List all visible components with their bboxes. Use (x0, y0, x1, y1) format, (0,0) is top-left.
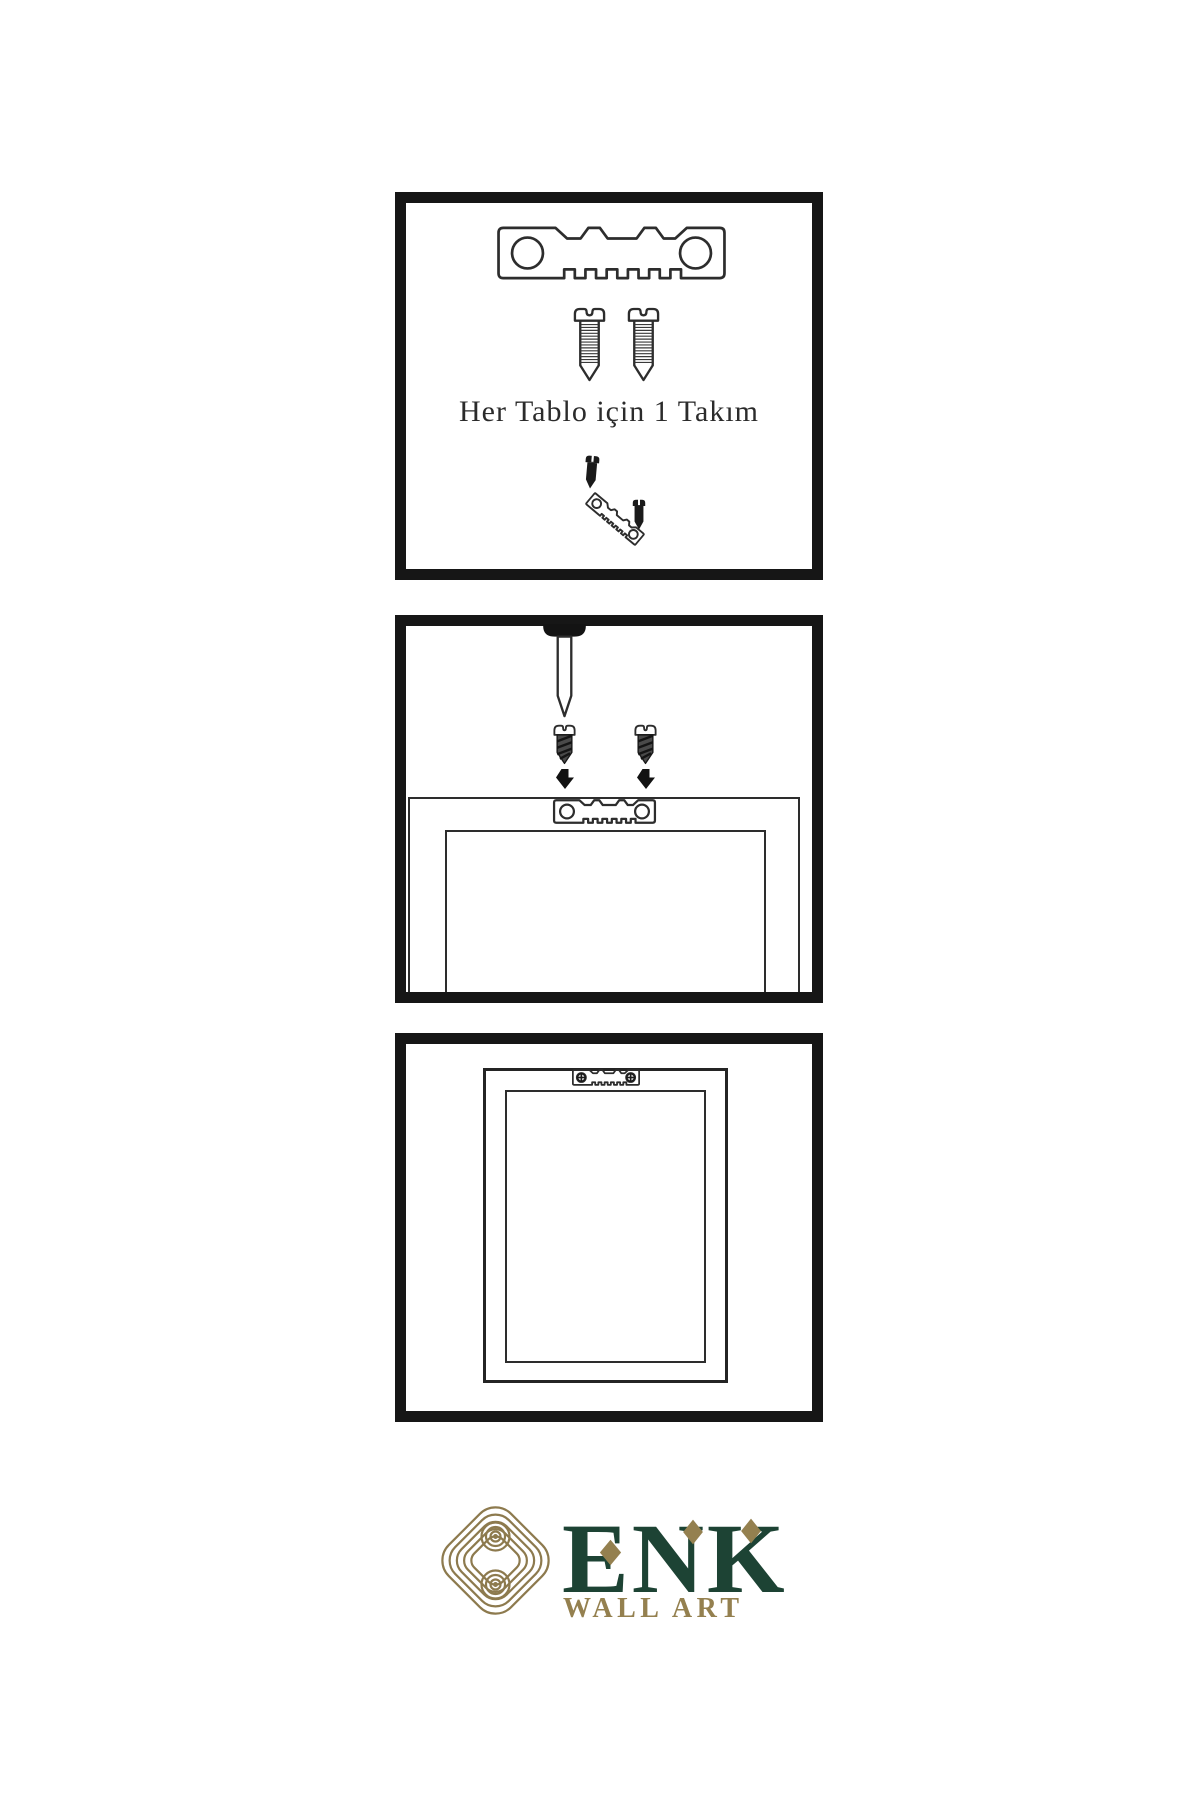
threaded-screw-icon (552, 722, 577, 768)
instruction-sheet: Her Tablo için 1 Takım (0, 0, 1200, 1800)
threaded-screw-icon (633, 722, 658, 768)
screw-icon (572, 305, 607, 383)
panel-hardware-kit: Her Tablo için 1 Takım (395, 192, 823, 580)
nail-icon (542, 624, 587, 719)
panel-mount-hanger (395, 615, 823, 1003)
panel-hung-frame (395, 1033, 823, 1422)
frame-back-inner-outline (445, 830, 766, 992)
down-arrow-icon (556, 769, 574, 789)
down-arrow-icon (637, 769, 655, 789)
sawtooth-hanger-icon (495, 225, 728, 281)
mounted-sawtooth-hanger-icon (572, 1069, 640, 1086)
dark-screw-icon (580, 452, 602, 491)
frame-front-inner-outline (505, 1090, 706, 1363)
kit-caption: Her Tablo için 1 Takım (406, 395, 812, 429)
dark-screw-icon (631, 496, 647, 532)
brand-subtitle: WALL ART (563, 1595, 823, 1623)
screw-icon (626, 305, 661, 383)
knot-logo-icon (433, 1492, 558, 1629)
sawtooth-hanger-icon (552, 799, 657, 824)
